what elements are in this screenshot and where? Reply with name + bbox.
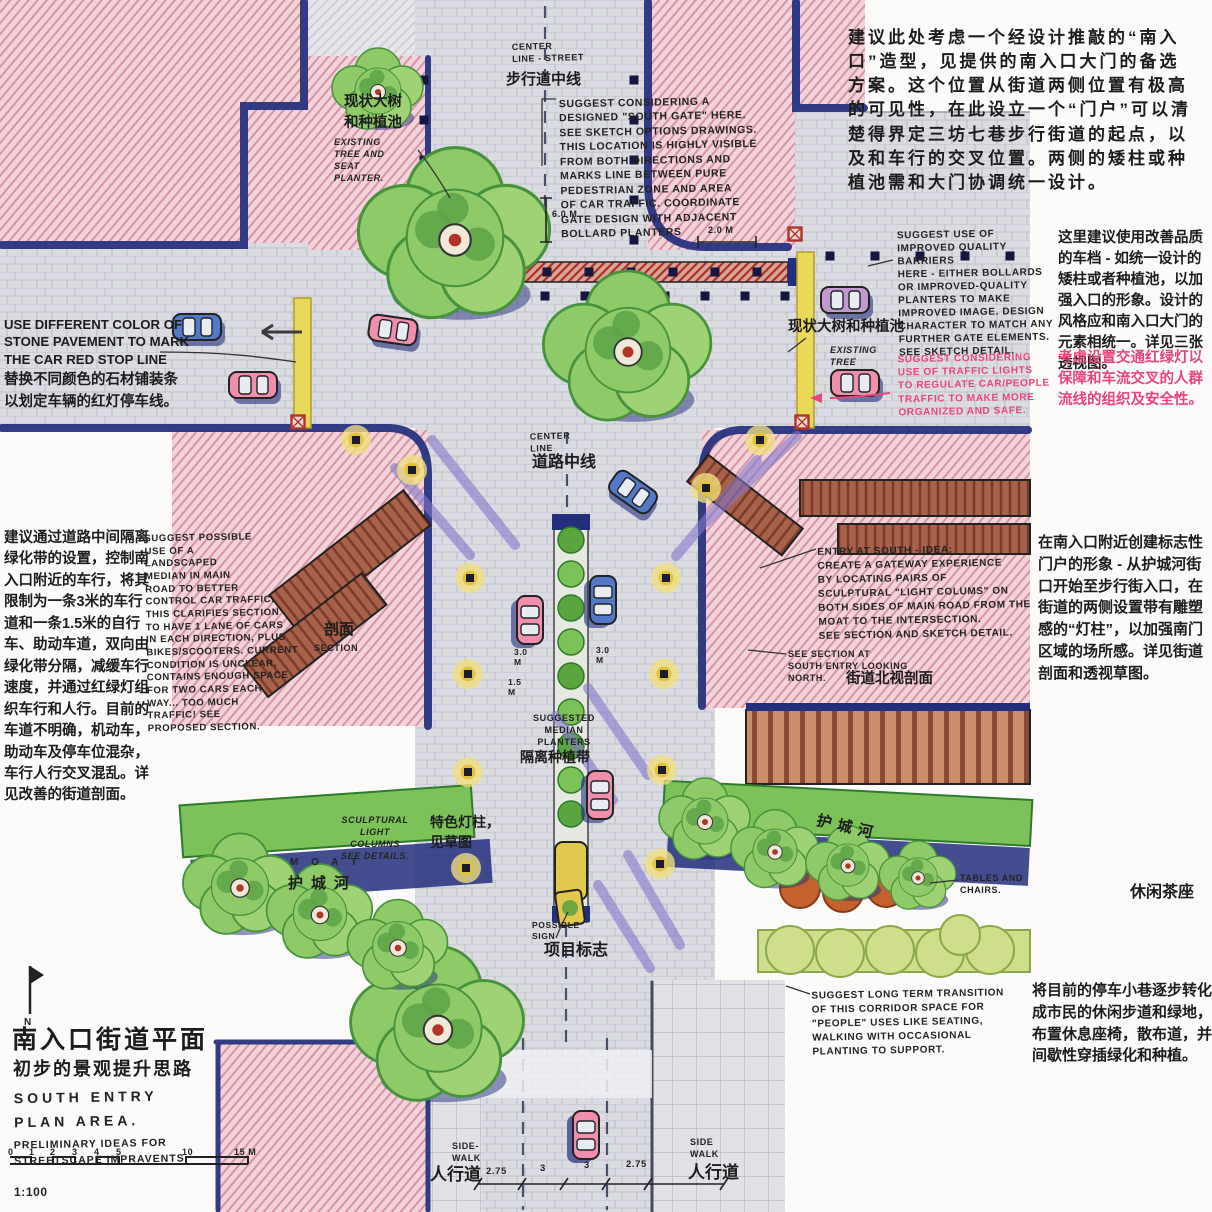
median-planters-label-en: SUGGESTED MEDIAN PLANTERS	[524, 712, 604, 748]
dim-3-b: 3	[584, 1160, 590, 1173]
sidewalk-right-label-en: SIDE WALK	[690, 1136, 719, 1160]
sidewalk-left-label-en: SIDE- WALK	[452, 1140, 481, 1164]
scale-tick-10: 10	[182, 1146, 193, 1158]
stop-line-note-cn: 替换不同颜色的石材铺装条 以划定车辆的红灯停车线。	[4, 370, 178, 414]
moat-label-cn: 护城河	[288, 874, 357, 894]
section-label-en: SECTION	[314, 642, 358, 654]
traffic-lights-note-en: SUGGEST CONSIDERING USE OF TRAFFIC LIGHT…	[897, 351, 1050, 420]
scale-tick-4: 4	[94, 1146, 100, 1158]
see-section-note-cn: 街道北视剖面	[846, 670, 933, 690]
scale-tick-1: 1	[29, 1146, 35, 1158]
dim-3m-b: 3.0 M	[596, 646, 610, 666]
stop-line-note-en: USE DIFFERENT COLOR OF STONE PAVEMENT TO…	[4, 316, 189, 368]
dim-6m: 6.0 M	[552, 208, 578, 220]
north-label: N	[24, 1016, 32, 1030]
section-label-cn: 剖面	[324, 620, 354, 640]
gateway-note-cn: 在南入口附近创建标志性门户的形象 - 从护城河街口开始至步行街入口，在街道的两侧…	[1038, 532, 1212, 684]
centerline-road-cn: 道路中线	[532, 452, 596, 474]
traffic-lights-note-cn: 考虑设置交通红绿灯以保障和车流交叉的人群流线的组织及安全性。	[1058, 348, 1212, 411]
light-column-label-cn: 特色灯柱， 见草图	[430, 812, 500, 853]
dim-1-5m: 1.5 M	[508, 678, 522, 698]
tea-seating-label-cn: 休闲茶座	[1130, 882, 1194, 904]
dim-2m: 2.0 m	[708, 224, 734, 236]
median-planters-label-cn: 隔离种植带	[520, 748, 590, 767]
project-sign-label-cn: 项目标志	[544, 940, 608, 962]
median-note-en: SUGGEST POSSIBLE USE OF A LANDSCAPED MED…	[144, 531, 299, 736]
sidewalk-right-label-cn: 人行道	[688, 1162, 739, 1185]
dim-3m-a: 3.0 M	[514, 648, 528, 668]
scale-tick-3: 3	[72, 1146, 78, 1158]
scale-ratio: 1:100	[14, 1184, 48, 1200]
streetscape-plan-sheet: 南入口街道平面 初步的景观提升思路 SOUTH ENTRY PLAN AREA.…	[0, 0, 1212, 1212]
dim-275-b: 2.75	[626, 1159, 647, 1172]
transition-note-cn: 将目前的停车小巷逐步转化成市民的休闲步道和绿地，布置休息座椅，散布道，并间歇性穿…	[1032, 980, 1212, 1067]
centerline-pedestrian-cn: 步行道中线	[506, 70, 581, 90]
existing-tree-right-en: EXISTING TREE	[830, 344, 877, 368]
dim-3-a: 3	[540, 1163, 546, 1176]
median-note-cn: 建议通过道路中间隔离绿化带的设置，控制南入口附近的车行，将其限制为一条3米的车行…	[4, 528, 150, 807]
colonnade-building	[746, 707, 1030, 784]
scale-tick-0: 0	[8, 1146, 14, 1158]
dim-275-a: 2.75	[486, 1166, 507, 1179]
page-title-cn: 南入口街道平面	[12, 1024, 208, 1058]
existing-tree-topleft-en: EXISTING TREE AND SEAT PLANTER.	[334, 136, 384, 185]
page-title-en-sub: PRELIMINARY IDEAS FOR STREETSCAPE IMPRAV…	[14, 1134, 189, 1170]
page-subtitle-cn: 初步的景观提升思路	[13, 1057, 193, 1081]
transition-note-en: SUGGEST LONG TERM TRANSITION OF THIS COR…	[811, 986, 1005, 1059]
scale-tick-15: 15 M	[234, 1146, 256, 1158]
south-gate-note-cn: 建议此处考虑一个经设计推敲的“南入口”造型，见提供的南入口大门的备选方案。这个位…	[848, 26, 1196, 195]
barriers-note-en: SUGGEST USE OF IMPROVED QUALITY BARRIERS…	[897, 227, 1054, 360]
existing-tree-topleft-cn: 现状大树 和种植池	[344, 92, 402, 134]
moat-label-en: M O A T	[290, 856, 362, 870]
scale-tick-5: 5	[116, 1146, 122, 1158]
entry-south-note-en: ENTRY AT SOUTH - IDEA: CREATE A GATEWAY …	[817, 542, 1031, 644]
page-title-en: SOUTH ENTRY PLAN AREA.	[14, 1085, 159, 1135]
centerline-pedestrian-en: CENTER LINE - STREET	[512, 39, 584, 65]
sidewalk-left-label-cn: 人行道	[430, 1164, 481, 1187]
south-gate-note-en: SUGGEST CONSIDERING A DESIGNED "SOUTH GA…	[559, 93, 821, 242]
existing-tree-right-cn: 现状大树和种植池	[788, 318, 904, 338]
tables-chairs-label-en: TABLES AND CHAIRS.	[960, 872, 1023, 896]
scale-tick-2: 2	[50, 1146, 56, 1158]
